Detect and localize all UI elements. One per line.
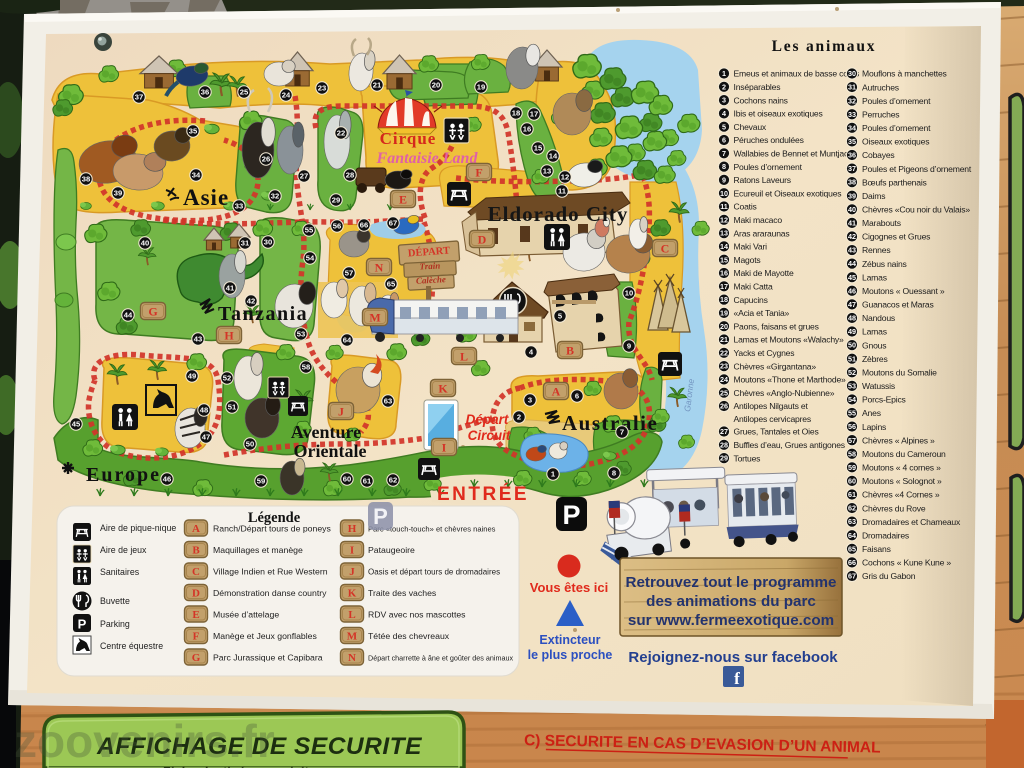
svg-text:Antilopes cervicapres: Antilopes cervicapres	[734, 414, 811, 424]
svg-text:G: G	[192, 652, 201, 664]
svg-text:K: K	[348, 587, 357, 599]
svg-text:f: f	[734, 669, 740, 688]
svg-text:39: 39	[848, 191, 856, 200]
svg-text:A: A	[192, 523, 200, 535]
svg-text:29: 29	[332, 196, 340, 205]
svg-text:P: P	[373, 504, 388, 529]
svg-text:H: H	[224, 328, 234, 342]
svg-text:2: 2	[722, 82, 726, 91]
svg-text:Wallabies de Bennet et Muntjac: Wallabies de Bennet et Muntjacs	[734, 149, 853, 159]
svg-text:Grues, Tantales et Oies: Grues, Tantales et Oies	[734, 427, 819, 437]
svg-text:3: 3	[722, 96, 726, 105]
svg-text:49: 49	[188, 372, 196, 381]
svg-text:Poules et Pigeons d’ornement: Poules et Pigeons d’ornement	[862, 164, 972, 174]
svg-text:23: 23	[720, 362, 728, 371]
svg-text:66: 66	[848, 558, 856, 567]
svg-text:des animations du parc: des animations du parc	[646, 593, 816, 610]
svg-text:15: 15	[720, 255, 728, 264]
svg-text:Lapins: Lapins	[862, 422, 886, 432]
svg-text:N: N	[348, 652, 356, 664]
svg-text:10: 10	[625, 289, 633, 298]
svg-text:Extincteur: Extincteur	[539, 633, 600, 647]
svg-text:36: 36	[848, 151, 856, 160]
svg-text:19: 19	[720, 308, 728, 317]
svg-text:16: 16	[523, 125, 531, 134]
svg-text:2: 2	[517, 413, 521, 422]
svg-text:35: 35	[189, 127, 198, 136]
svg-text:41: 41	[848, 218, 856, 227]
svg-text:59: 59	[257, 477, 265, 486]
svg-text:D: D	[192, 587, 200, 599]
svg-text:6: 6	[722, 136, 726, 145]
svg-text:40: 40	[141, 239, 149, 248]
svg-text:Ranch/Départ tours de poneys: Ranch/Départ tours de poneys	[213, 524, 331, 534]
svg-text:11: 11	[558, 187, 567, 196]
svg-text:Chèvres du Rove: Chèvres du Rove	[862, 503, 926, 513]
svg-text:Musée d’attelage: Musée d’attelage	[213, 610, 279, 620]
svg-text:Centre équestre: Centre équestre	[100, 641, 163, 651]
svg-text:52: 52	[848, 368, 856, 377]
svg-text:sur www.fermeexotique.com: sur www.fermeexotique.com	[628, 612, 834, 629]
svg-text:41: 41	[226, 284, 235, 293]
svg-text:17: 17	[530, 110, 538, 119]
svg-text:56: 56	[848, 422, 856, 431]
svg-text:55: 55	[848, 409, 856, 418]
svg-text:45: 45	[72, 420, 81, 429]
svg-text:32: 32	[271, 192, 279, 201]
svg-text:50: 50	[246, 440, 254, 449]
svg-text:20: 20	[432, 81, 440, 90]
svg-text:E: E	[399, 192, 407, 206]
svg-text:Dromadaires: Dromadaires	[862, 530, 909, 540]
svg-text:Manège et Jeux gonflables: Manège et Jeux gonflables	[213, 631, 317, 641]
svg-text:42: 42	[848, 232, 856, 241]
svg-text:7: 7	[620, 428, 624, 437]
svg-text:58: 58	[848, 449, 856, 458]
svg-text:C: C	[661, 241, 670, 255]
svg-text:32: 32	[848, 96, 856, 105]
svg-text:Poules d’ornement: Poules d’ornement	[862, 123, 931, 133]
svg-text:25: 25	[720, 388, 728, 397]
svg-text:64: 64	[848, 531, 856, 540]
svg-text:Buvette: Buvette	[100, 596, 130, 606]
svg-text:D: D	[478, 232, 487, 246]
svg-text:M: M	[347, 630, 358, 642]
svg-text:Ratons Laveurs: Ratons Laveurs	[734, 175, 791, 185]
svg-text:Moutons «Thone et Marthode»: Moutons «Thone et Marthode»	[734, 375, 847, 385]
svg-text:35: 35	[848, 137, 856, 146]
svg-text:62: 62	[389, 476, 397, 485]
svg-text:Oiseaux exotiques: Oiseaux exotiques	[862, 137, 929, 147]
svg-text:Moutons du Somalie: Moutons du Somalie	[862, 367, 937, 377]
svg-text:26: 26	[720, 402, 728, 411]
svg-text:13: 13	[720, 229, 728, 238]
svg-text:Buffles d’eau, Grues antigones: Buffles d’eau, Grues antigones	[734, 440, 845, 450]
svg-text:26: 26	[262, 155, 270, 164]
svg-text:Tanzania: Tanzania	[218, 303, 308, 325]
svg-text:Ecureuil et Oiseaux exotiques: Ecureuil et Oiseaux exotiques	[734, 188, 842, 198]
svg-text:48: 48	[200, 406, 208, 415]
svg-text:18: 18	[512, 109, 520, 118]
svg-text:24: 24	[282, 91, 291, 100]
svg-text:Maki Catta: Maki Catta	[734, 282, 773, 292]
svg-text:28: 28	[720, 440, 728, 449]
svg-text:Circuit: Circuit	[468, 428, 511, 443]
svg-text:«Acia et Tania»: «Acia et Tania»	[734, 308, 790, 318]
svg-text:Capucins: Capucins	[734, 295, 768, 305]
svg-text:Faisans: Faisans	[862, 544, 891, 554]
svg-text:40: 40	[848, 205, 856, 214]
svg-text:31: 31	[241, 239, 250, 248]
svg-text:A: A	[552, 384, 561, 398]
svg-text:66: 66	[360, 221, 368, 230]
svg-text:Bœufs parthenais: Bœufs parthenais	[862, 177, 927, 187]
svg-text:12: 12	[561, 173, 569, 182]
svg-text:Cigognes et Grues: Cigognes et Grues	[862, 232, 930, 242]
svg-text:57: 57	[345, 269, 353, 278]
svg-text:14: 14	[720, 242, 728, 251]
svg-text:19: 19	[477, 83, 485, 92]
svg-text:24: 24	[720, 375, 728, 384]
svg-text:46: 46	[848, 286, 856, 295]
svg-text:ENTRÉE: ENTRÉE	[437, 483, 529, 505]
svg-text:B: B	[566, 343, 574, 357]
svg-text:29: 29	[720, 454, 728, 463]
svg-text:27: 27	[720, 427, 728, 436]
svg-text:Maquillages et manège: Maquillages et manège	[213, 545, 303, 555]
svg-text:Oasis et départ tours de droma: Oasis et départ tours de dromadaires	[368, 568, 500, 577]
svg-text:Moutons du Cameroun: Moutons du Cameroun	[862, 449, 946, 459]
svg-text:Anes: Anes	[862, 408, 881, 418]
svg-text:3: 3	[528, 396, 532, 405]
svg-text:B: B	[192, 544, 200, 556]
svg-text:P: P	[562, 500, 580, 530]
svg-text:Rejoignez-nous sur facebook: Rejoignez-nous sur facebook	[628, 649, 838, 666]
svg-text:Cirque: Cirque	[380, 129, 437, 148]
svg-text:60: 60	[343, 475, 351, 484]
svg-text:L: L	[348, 609, 355, 621]
svg-text:64: 64	[343, 336, 352, 345]
svg-text:Chèvres « Alpines »: Chèvres « Alpines »	[862, 435, 935, 445]
svg-text:Antilopes Nilgauts et: Antilopes Nilgauts et	[734, 401, 809, 411]
svg-text:43: 43	[848, 246, 856, 255]
svg-text:Mouflons à manchettes: Mouflons à manchettes	[862, 69, 947, 79]
svg-text:Aventure: Aventure	[291, 422, 361, 442]
svg-text:38: 38	[82, 175, 90, 184]
svg-text:Moutons « 4 cornes »: Moutons « 4 cornes »	[862, 463, 941, 473]
svg-text:67: 67	[389, 219, 397, 228]
svg-text:14: 14	[549, 152, 558, 161]
svg-text:12: 12	[720, 215, 728, 224]
svg-text:Poules d’ornement: Poules d’ornement	[734, 162, 803, 172]
svg-text:43: 43	[194, 335, 202, 344]
svg-text:17: 17	[720, 282, 728, 291]
svg-text:52: 52	[223, 374, 231, 383]
svg-text:N: N	[375, 260, 384, 274]
svg-text:RDV avec nos mascottes: RDV avec nos mascottes	[368, 610, 466, 620]
svg-text:Lamas: Lamas	[862, 272, 887, 282]
svg-text:Chèvres «Cou noir du Valais»: Chèvres «Cou noir du Valais»	[862, 205, 970, 215]
svg-text:Lamas et Moutons «Walachy»: Lamas et Moutons «Walachy»	[734, 335, 844, 345]
svg-text:53: 53	[848, 381, 856, 390]
svg-text:44: 44	[848, 259, 856, 268]
svg-text:Maki macaco: Maki macaco	[734, 215, 783, 225]
svg-text:Perruches: Perruches	[862, 109, 899, 119]
svg-text:Asie: Asie	[183, 185, 229, 210]
svg-text:Traite des vaches: Traite des vaches	[368, 588, 437, 598]
svg-text:Train: Train	[419, 260, 440, 271]
svg-text:L: L	[460, 349, 468, 363]
svg-text:38: 38	[848, 178, 856, 187]
svg-text:34: 34	[848, 123, 856, 132]
svg-text:Cobayes: Cobayes	[862, 150, 895, 160]
svg-text:Parking: Parking	[100, 619, 130, 629]
svg-text:Eldorado City: Eldorado City	[488, 202, 629, 226]
svg-text:23: 23	[318, 84, 326, 93]
svg-text:Pataugeoire: Pataugeoire	[368, 545, 415, 555]
svg-text:28: 28	[346, 171, 354, 180]
svg-text:Cochons « Kune Kune »: Cochons « Kune Kune »	[862, 558, 951, 568]
svg-text:25: 25	[240, 88, 249, 97]
svg-text:Chevaux: Chevaux	[734, 122, 767, 132]
svg-text:13: 13	[543, 167, 551, 176]
svg-text:Maki Vari: Maki Vari	[734, 242, 768, 252]
svg-text:39: 39	[114, 189, 122, 198]
svg-text:36: 36	[201, 88, 209, 97]
svg-text:27: 27	[300, 172, 308, 181]
svg-text:47: 47	[848, 300, 856, 309]
svg-text:Démonstration danse country: Démonstration danse country	[213, 588, 327, 598]
svg-text:33: 33	[235, 202, 243, 211]
svg-text:Moutons « Ouessant »: Moutons « Ouessant »	[862, 286, 945, 296]
svg-text:Départ charrette à âne et goût: Départ charrette à âne et goûter des ani…	[368, 654, 513, 663]
svg-text:51: 51	[848, 354, 856, 363]
svg-text:34: 34	[192, 171, 201, 180]
svg-text:Gnous: Gnous	[862, 340, 886, 350]
svg-text:G: G	[148, 304, 157, 318]
svg-text:63: 63	[384, 397, 392, 406]
svg-text:M: M	[369, 310, 380, 324]
svg-text:Village Indien et Rue Western: Village Indien et Rue Western	[213, 567, 328, 577]
svg-text:65: 65	[848, 544, 856, 553]
svg-text:50: 50	[848, 341, 856, 350]
svg-text:Zébus nains: Zébus nains	[862, 259, 907, 269]
svg-text:Maki de Mayotte: Maki de Mayotte	[734, 268, 794, 278]
svg-text:zoovenirs.fr: zoovenirs.fr	[14, 715, 275, 767]
svg-text:59: 59	[848, 463, 856, 472]
svg-text:48: 48	[848, 314, 856, 323]
svg-text:51: 51	[228, 403, 237, 412]
svg-text:Moutons « Solognot »: Moutons « Solognot »	[862, 476, 942, 486]
svg-text:Parc Jurassique et Capibara: Parc Jurassique et Capibara	[213, 653, 323, 663]
svg-text:1: 1	[722, 69, 726, 78]
svg-text:Cochons nains: Cochons nains	[734, 95, 788, 105]
svg-text:Tétée des chevreaux: Tétée des chevreaux	[368, 631, 450, 641]
svg-text:Aire de jeux: Aire de jeux	[100, 545, 147, 555]
svg-text:61: 61	[848, 490, 856, 499]
svg-text:57: 57	[848, 436, 856, 445]
svg-text:65: 65	[387, 280, 396, 289]
svg-text:20: 20	[720, 322, 728, 331]
svg-text:58: 58	[302, 363, 310, 372]
svg-text:Inséparables: Inséparables	[734, 82, 781, 92]
svg-text:Australie: Australie	[562, 411, 658, 435]
svg-text:47: 47	[202, 433, 210, 442]
svg-text:54: 54	[848, 395, 856, 404]
svg-text:Marabouts: Marabouts	[862, 218, 901, 228]
svg-text:31: 31	[848, 83, 856, 92]
svg-text:Retrouvez tout le programme: Retrouvez tout le programme	[626, 574, 837, 591]
svg-text:10: 10	[720, 189, 728, 198]
svg-text:E: E	[192, 609, 199, 621]
svg-text:Calèche: Calèche	[416, 274, 446, 286]
svg-text:I: I	[350, 544, 354, 556]
svg-text:60: 60	[848, 476, 856, 485]
svg-text:Chèvres «4 Cornes »: Chèvres «4 Cornes »	[862, 490, 940, 500]
svg-text:22: 22	[720, 348, 728, 357]
svg-text:37: 37	[135, 93, 143, 102]
svg-text:Chèvres «Girgantana»: Chèvres «Girgantana»	[734, 361, 817, 371]
svg-text:9: 9	[722, 175, 726, 184]
svg-text:Sanitaires: Sanitaires	[100, 567, 140, 577]
svg-text:F: F	[475, 165, 482, 179]
svg-text:J: J	[338, 404, 344, 418]
svg-text:45: 45	[848, 273, 856, 282]
svg-text:Porcs-Epics: Porcs-Epics	[862, 395, 906, 405]
svg-text:Paons, faisans et grues: Paons, faisans et grues	[734, 321, 819, 331]
svg-text:Yacks et Cygnes: Yacks et Cygnes	[734, 348, 795, 358]
svg-text:22: 22	[337, 129, 345, 138]
svg-text:Chèvres «Anglo-Nubienne»: Chèvres «Anglo-Nubienne»	[734, 388, 835, 398]
svg-text:Emeus et animaux de basse cour: Emeus et animaux de basse cours	[734, 69, 860, 79]
svg-text:Daims: Daims	[862, 191, 885, 201]
svg-text:61: 61	[363, 477, 372, 486]
svg-text:Lamas: Lamas	[862, 327, 887, 337]
svg-text:21: 21	[720, 335, 728, 344]
svg-text:Magots: Magots	[734, 255, 761, 265]
svg-text:P: P	[78, 617, 87, 632]
svg-text:Aire de pique-nique: Aire de pique-nique	[100, 523, 176, 533]
svg-text:Watussis: Watussis	[862, 381, 895, 391]
svg-text:Fantaisie Land: Fantaisie Land	[376, 150, 479, 167]
svg-text:Péruches ondulées: Péruches ondulées	[734, 135, 804, 145]
svg-text:8: 8	[722, 162, 726, 171]
svg-text:Vous êtes ici: Vous êtes ici	[530, 580, 609, 595]
svg-text:le plus proche: le plus proche	[528, 648, 613, 662]
svg-text:4: 4	[722, 109, 726, 118]
svg-text:Aras araraunas: Aras araraunas	[734, 228, 790, 238]
svg-text:5: 5	[722, 122, 726, 131]
svg-text:67: 67	[848, 572, 856, 581]
svg-text:8: 8	[612, 469, 616, 478]
svg-text:Les animaux: Les animaux	[772, 38, 877, 55]
svg-text:30: 30	[264, 238, 272, 247]
svg-text:37: 37	[848, 164, 856, 173]
svg-text:Autruches: Autruches	[862, 82, 899, 92]
svg-text:33: 33	[848, 110, 856, 119]
svg-text:54: 54	[306, 254, 315, 263]
svg-text:15: 15	[534, 144, 543, 153]
svg-text:Coatis: Coatis	[734, 202, 757, 212]
svg-text:Nandous: Nandous	[862, 313, 895, 323]
svg-text:18: 18	[720, 295, 728, 304]
svg-text:44: 44	[124, 311, 133, 320]
svg-text:62: 62	[848, 504, 856, 513]
svg-text:Europe: Europe	[86, 464, 161, 486]
svg-text:53: 53	[297, 330, 305, 339]
svg-text:Guanacos et Maras: Guanacos et Maras	[862, 300, 934, 310]
svg-text:11: 11	[720, 202, 728, 211]
svg-text:Départ: Départ	[466, 412, 509, 427]
svg-text:42: 42	[247, 297, 255, 306]
svg-text:55: 55	[305, 226, 314, 235]
svg-text:I: I	[442, 440, 447, 454]
svg-text:Orientale: Orientale	[294, 441, 367, 461]
svg-text:21: 21	[373, 81, 382, 90]
svg-text:46: 46	[163, 475, 171, 484]
svg-text:K: K	[438, 381, 448, 395]
svg-text:9: 9	[627, 342, 631, 351]
svg-text:49: 49	[848, 327, 856, 336]
svg-text:J: J	[349, 566, 355, 578]
svg-text:Rennes: Rennes	[862, 245, 890, 255]
svg-text:7: 7	[722, 149, 726, 158]
svg-text:H: H	[348, 523, 357, 535]
svg-text:C: C	[192, 566, 200, 578]
svg-text:30: 30	[848, 69, 856, 78]
svg-text:Zèbres: Zèbres	[862, 354, 888, 364]
svg-text:56: 56	[333, 222, 341, 231]
svg-text:6: 6	[575, 392, 579, 401]
svg-text:Tortues: Tortues	[734, 453, 761, 463]
svg-text:63: 63	[848, 517, 856, 526]
svg-text:Gris du Gabon: Gris du Gabon	[862, 571, 916, 581]
svg-text:16: 16	[720, 269, 728, 278]
svg-text:Ibis et oiseaux exotiques: Ibis et oiseaux exotiques	[734, 109, 823, 119]
svg-text:Poules d’ornement: Poules d’ornement	[862, 96, 931, 106]
svg-text:F: F	[193, 630, 200, 642]
svg-text:Dromadaires et Chameaux: Dromadaires et Chameaux	[862, 517, 961, 527]
